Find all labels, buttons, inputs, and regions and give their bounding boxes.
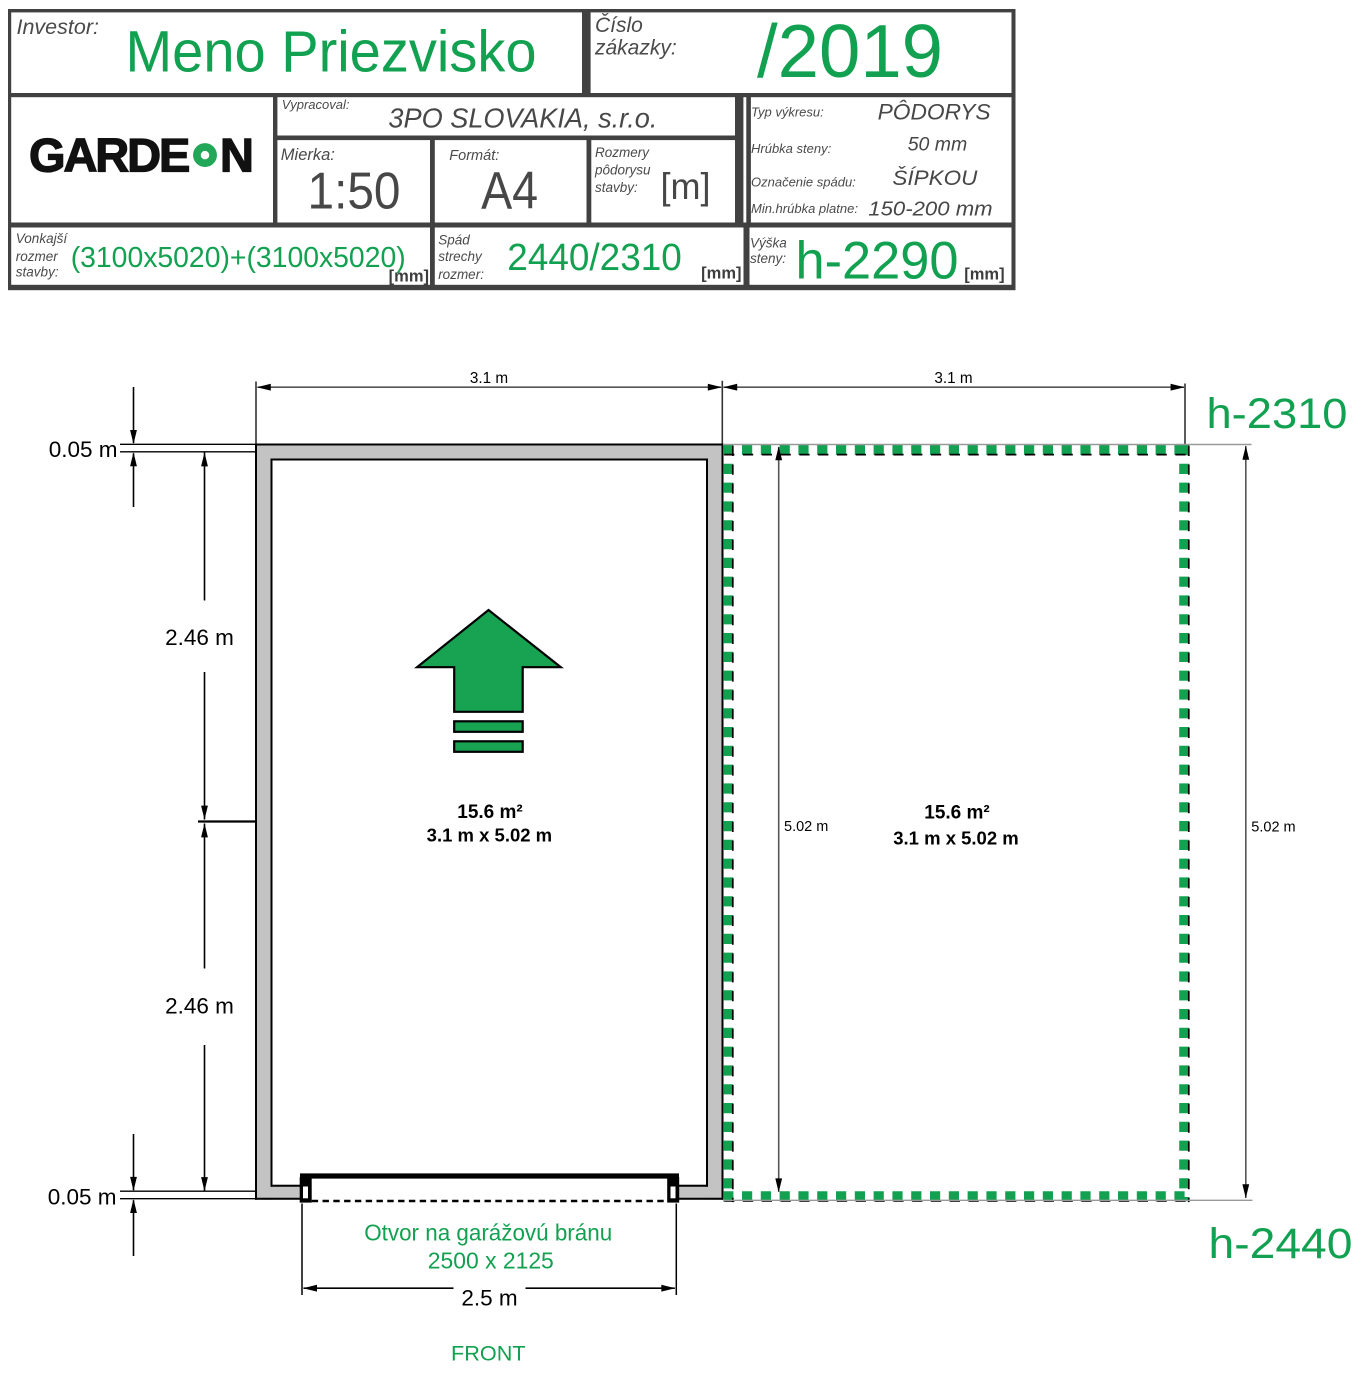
svg-text:Meno Priezvisko: Meno Priezvisko (126, 20, 537, 85)
svg-text:[mm]: [mm] (701, 264, 741, 282)
svg-text:pôdorysu: pôdorysu (594, 163, 651, 178)
svg-text:FRONT: FRONT (451, 1341, 526, 1365)
svg-text:Vonkajší: Vonkajší (16, 231, 69, 246)
svg-text:50 mm: 50 mm (908, 134, 968, 156)
svg-text:Vypracoval:: Vypracoval: (282, 97, 350, 112)
svg-text:zákazky:: zákazky: (594, 37, 677, 60)
svg-text:stavby:: stavby: (16, 265, 59, 280)
svg-text:0.05 m: 0.05 m (48, 1184, 117, 1209)
svg-text:150-200 mm: 150-200 mm (868, 198, 992, 220)
svg-text:Typ výkresu:: Typ výkresu: (751, 105, 824, 120)
svg-text:GARDE: GARDE (29, 128, 189, 181)
svg-text:Spád: Spád (438, 233, 470, 248)
svg-text:Mierka:: Mierka: (281, 146, 335, 164)
svg-text:Min.hrúbka platne:: Min.hrúbka platne: (751, 201, 858, 216)
svg-text:Rozmery: Rozmery (595, 145, 650, 160)
svg-text:5.02 m: 5.02 m (1251, 820, 1295, 836)
svg-text:PÔDORYS: PÔDORYS (878, 100, 991, 125)
svg-text:3.1 m x 5.02 m: 3.1 m x 5.02 m (893, 828, 1018, 849)
svg-text:3PO SLOVAKIA, s.r.o.: 3PO SLOVAKIA, s.r.o. (388, 103, 657, 134)
svg-text:h-2290: h-2290 (796, 232, 959, 291)
svg-text:(3100x5020)+(3100x5020): (3100x5020)+(3100x5020) (71, 242, 406, 274)
svg-text:2500 x 2125: 2500 x 2125 (428, 1247, 554, 1273)
svg-text:3.1 m: 3.1 m (470, 370, 508, 387)
svg-text:15.6 m²: 15.6 m² (924, 803, 989, 824)
svg-text:3.1 m: 3.1 m (934, 370, 972, 387)
svg-text:2.5 m: 2.5 m (461, 1286, 517, 1311)
svg-text:strechy: strechy (438, 249, 483, 264)
svg-text:h-2440: h-2440 (1209, 1220, 1353, 1268)
svg-text:Číslo: Číslo (595, 14, 643, 37)
svg-text:2440/2310: 2440/2310 (507, 237, 682, 279)
svg-text:rozmer:: rozmer: (438, 267, 484, 282)
svg-text:15.6 m²: 15.6 m² (457, 802, 522, 823)
svg-text:2.46 m: 2.46 m (165, 625, 234, 650)
svg-text:[mm]: [mm] (389, 267, 429, 285)
svg-text:Výška: Výška (750, 236, 787, 251)
svg-text:ŠÍPKOU: ŠÍPKOU (892, 167, 978, 190)
svg-text:Investor:: Investor: (17, 15, 99, 39)
svg-text:Otvor na garážovú bránu: Otvor na garážovú bránu (364, 1220, 612, 1246)
svg-text:steny:: steny: (750, 251, 786, 266)
svg-text:h-2310: h-2310 (1207, 390, 1348, 438)
svg-text:5.02 m: 5.02 m (784, 819, 828, 835)
svg-text:stavby:: stavby: (595, 180, 638, 195)
svg-text:1:50: 1:50 (308, 162, 401, 220)
svg-text:0.05 m: 0.05 m (49, 437, 118, 462)
svg-text:A4: A4 (481, 161, 538, 220)
svg-text:[mm]: [mm] (964, 265, 1004, 283)
svg-text:[m]: [m] (661, 166, 711, 207)
svg-text:N: N (220, 128, 254, 181)
svg-text:3.1 m x 5.02 m: 3.1 m x 5.02 m (427, 825, 552, 846)
svg-text:/2019: /2019 (757, 9, 943, 93)
svg-text:2.46 m: 2.46 m (165, 993, 234, 1018)
svg-text:rozmer: rozmer (16, 249, 59, 264)
svg-text:Označenie spádu:: Označenie spádu: (751, 174, 856, 189)
svg-text:Hrúbka steny:: Hrúbka steny: (751, 141, 832, 156)
